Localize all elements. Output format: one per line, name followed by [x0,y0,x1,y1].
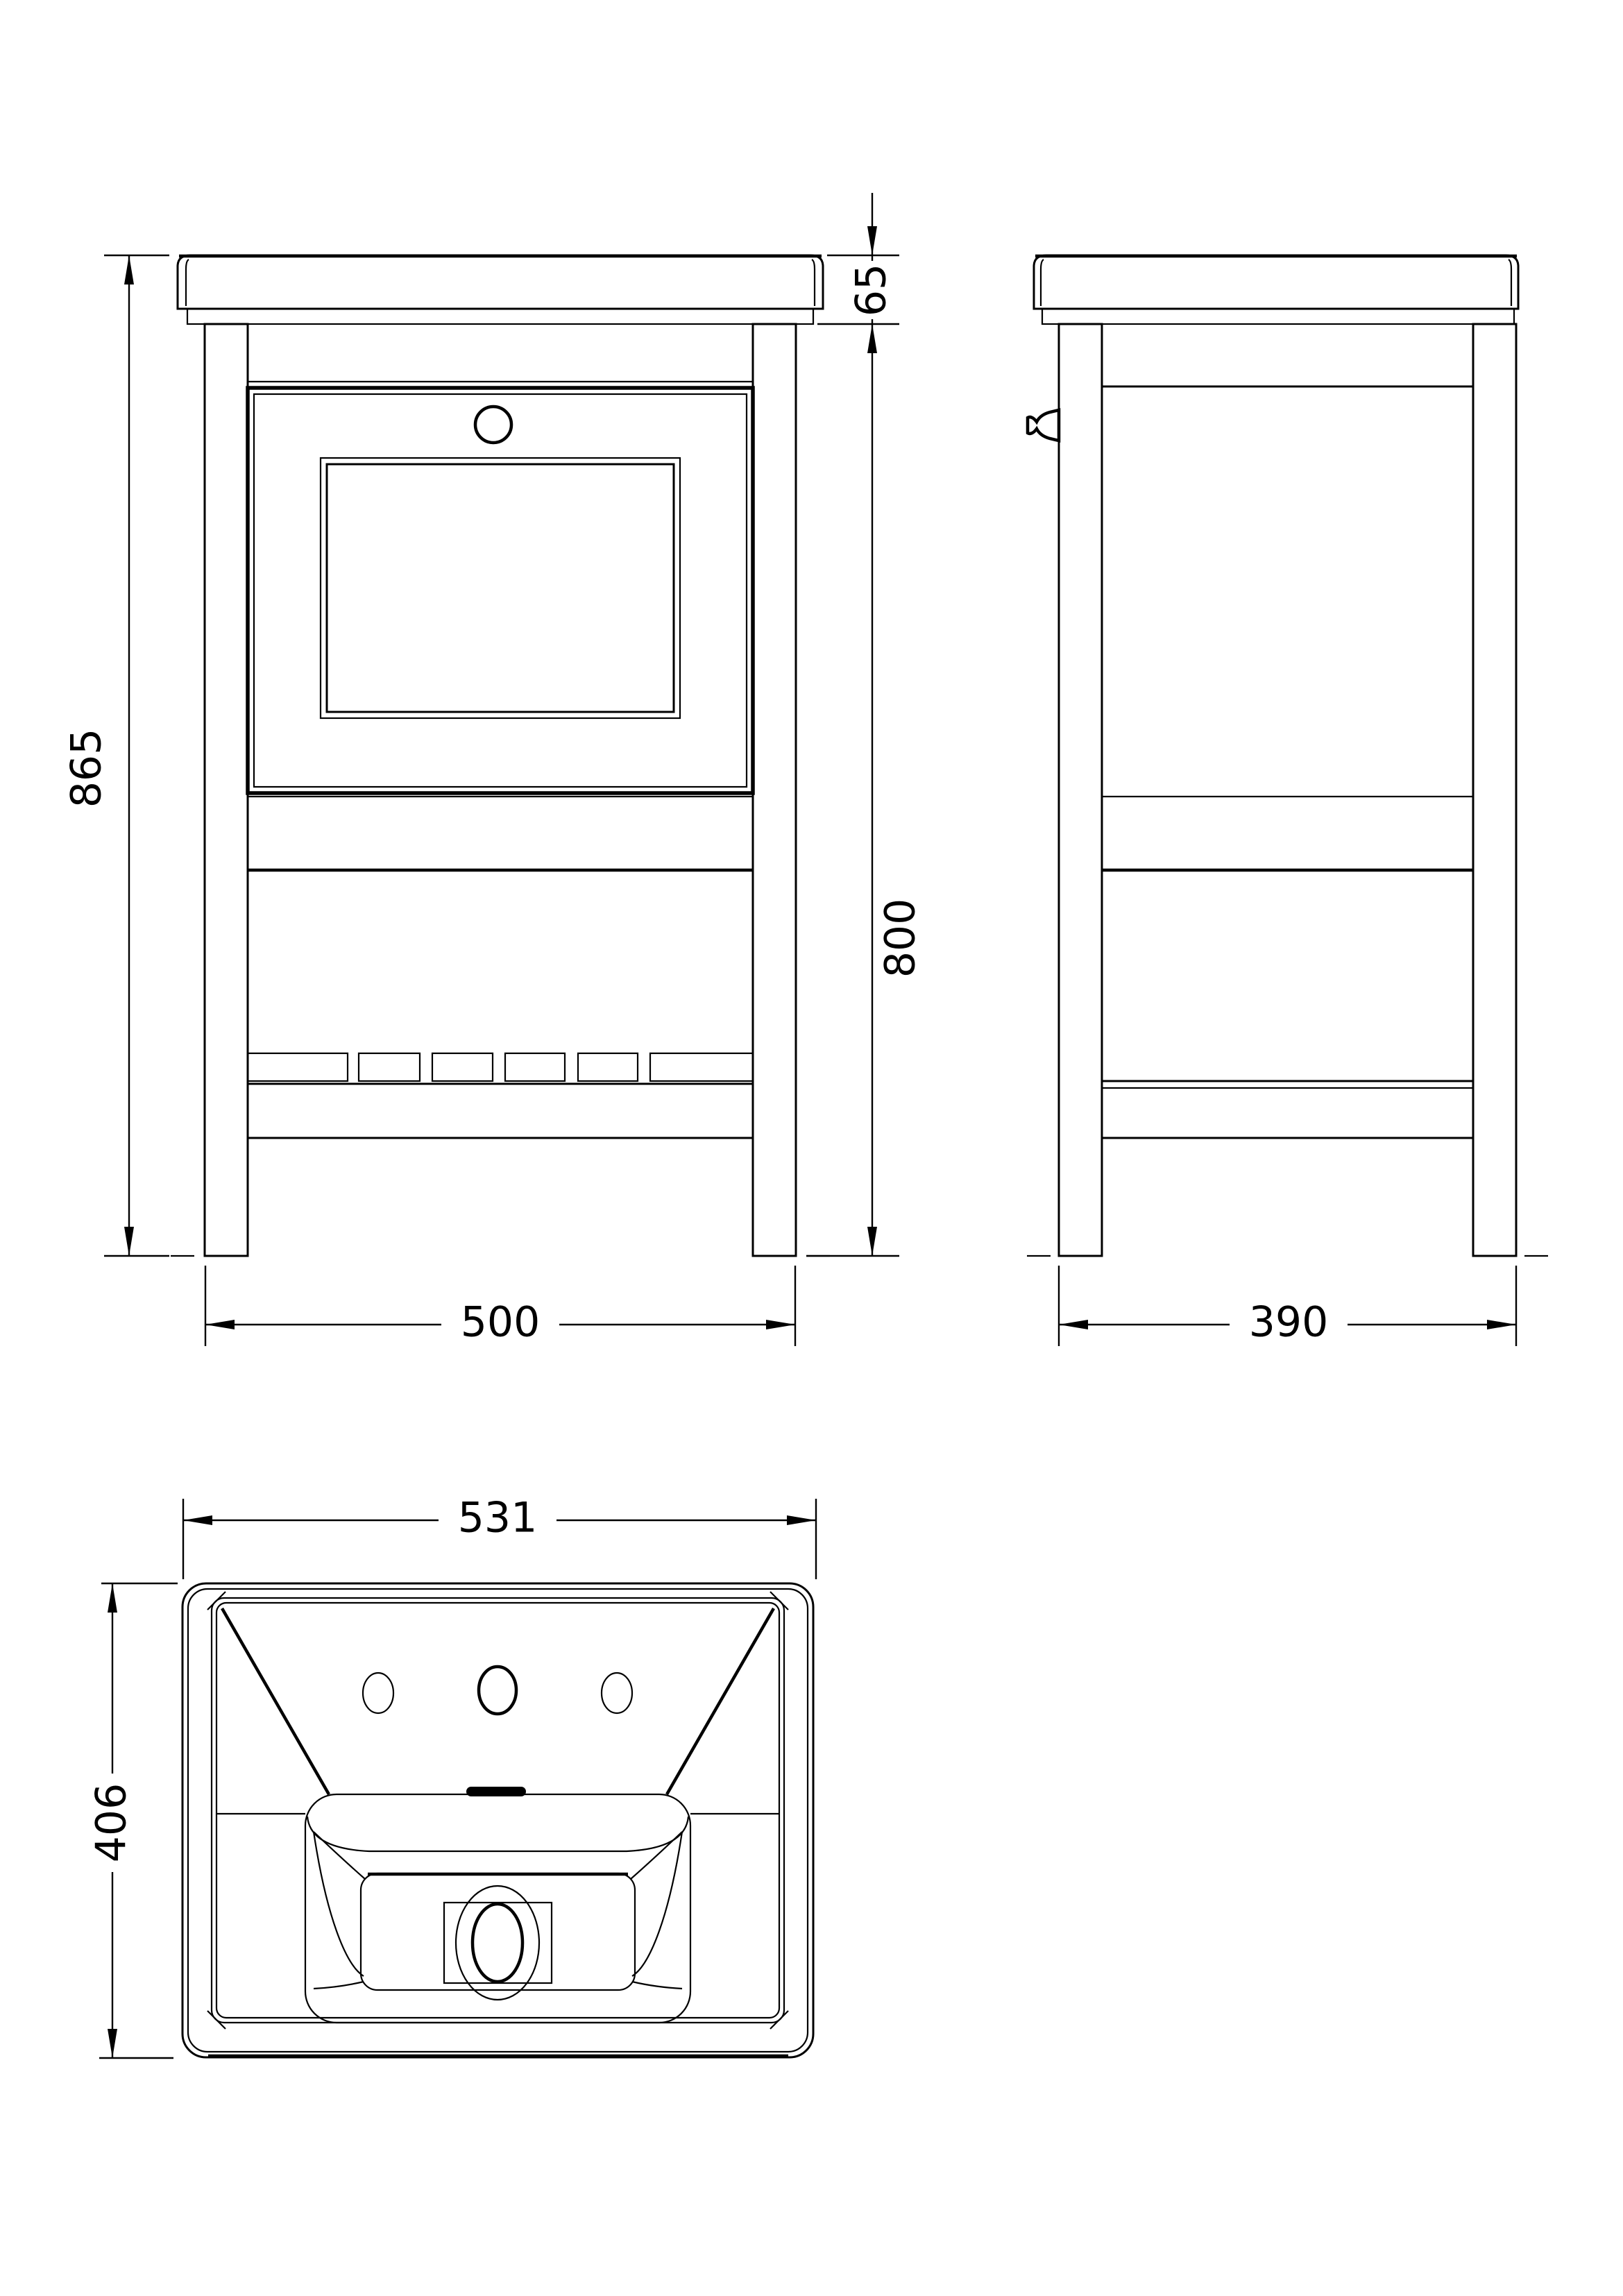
shelf-slat [432,1053,493,1081]
bowl-outline [305,1794,690,2023]
side-back-leg [1473,324,1516,1256]
shelf-slat [650,1053,753,1081]
side-knob-profile [1028,410,1059,441]
arrowhead-right [766,1320,795,1329]
slatted-shelf [248,1053,753,1138]
technical-drawing: 865 65 800 500 390 [0,0,1623,2296]
arrowhead-left [1059,1320,1088,1329]
side-countertop-slab [1034,255,1518,309]
arrowhead-down [867,226,877,255]
front-bottom-rail [248,797,753,870]
arrowhead-down [124,1227,134,1256]
basin-plan-view [182,1583,813,2057]
dim-865: 865 [62,255,169,1256]
side-counter-edge-left [1041,260,1044,306]
bowl-floor [361,1873,635,1990]
door-outline [248,388,753,793]
arrowhead-down [108,2029,117,2058]
shelf-slat [359,1053,420,1081]
drawing-canvas: 865 65 800 500 390 [0,0,1623,2296]
tap-hole-center [479,1667,516,1714]
side-countertop-lip [1042,309,1514,324]
front-right-leg [753,324,796,1256]
bowl-rim-front-curve [307,1817,688,1851]
dim-390: 390 [1059,1266,1516,1347]
bowl-wall-right [632,1832,682,1976]
bowl-front-corner-right [632,1982,682,1989]
arrowhead-left [205,1320,235,1329]
corner-tick [207,2011,226,2029]
arrowhead-up [108,1583,117,1613]
dim-531: 531 [183,1494,816,1579]
side-counter-edge-right [1509,260,1511,306]
shelf-slat [578,1053,638,1081]
countertop-edge-roundover-left [186,260,189,306]
bowl-front-corner-left [314,1982,364,1989]
waste-square [444,1903,552,1983]
front-left-leg [205,324,248,1256]
arrowhead-left [183,1515,212,1525]
deck-slope-left [222,1608,329,1794]
dim-406: 406 [87,1583,178,2058]
drain-hole [473,1904,522,1982]
door-knob [475,407,511,443]
front-countertop [178,255,823,324]
arrowhead-right [1487,1320,1516,1329]
corner-tick [770,2011,788,2029]
tap-hole-right [602,1673,632,1713]
side-countertop [1034,255,1518,324]
overflow-slot [466,1787,526,1796]
deck-slope-right [667,1608,774,1794]
basin-deck-rect [212,1598,784,2023]
countertop-slab [178,255,823,309]
dim-label-531: 531 [458,1494,538,1542]
arrowhead-down [867,1227,877,1256]
basin-deck-rect-inner [216,1603,779,2018]
door-panel-inner [327,464,674,712]
dim-label-500: 500 [461,1298,541,1347]
corner-tick [207,1592,226,1610]
shelf-slat [248,1053,348,1081]
dim-label-65: 65 [847,264,896,316]
bowl-wall-left [314,1832,364,1976]
dim-500: 500 [205,1266,795,1347]
dim-65: 65 [817,193,899,389]
front-view [171,255,830,1256]
arrowhead-right [787,1515,816,1525]
dim-label-865: 865 [62,729,111,808]
dim-800: 800 [806,389,925,1256]
shelf-slat [505,1053,565,1081]
dim-label-390: 390 [1249,1298,1329,1347]
side-front-leg [1059,324,1102,1256]
dim-label-406: 406 [87,1783,136,1863]
corner-tick [770,1592,788,1610]
basin-outer-rim [182,1583,813,2057]
cabinet-door [248,388,753,793]
countertop-edge-roundover-right [812,260,815,306]
arrowhead-up [867,324,877,353]
side-view [1027,255,1548,1256]
door-panel-outer [321,458,680,718]
dim-label-800: 800 [876,899,925,978]
tap-hole-left [363,1673,393,1713]
countertop-lip [187,309,813,324]
arrowhead-up [124,255,134,284]
